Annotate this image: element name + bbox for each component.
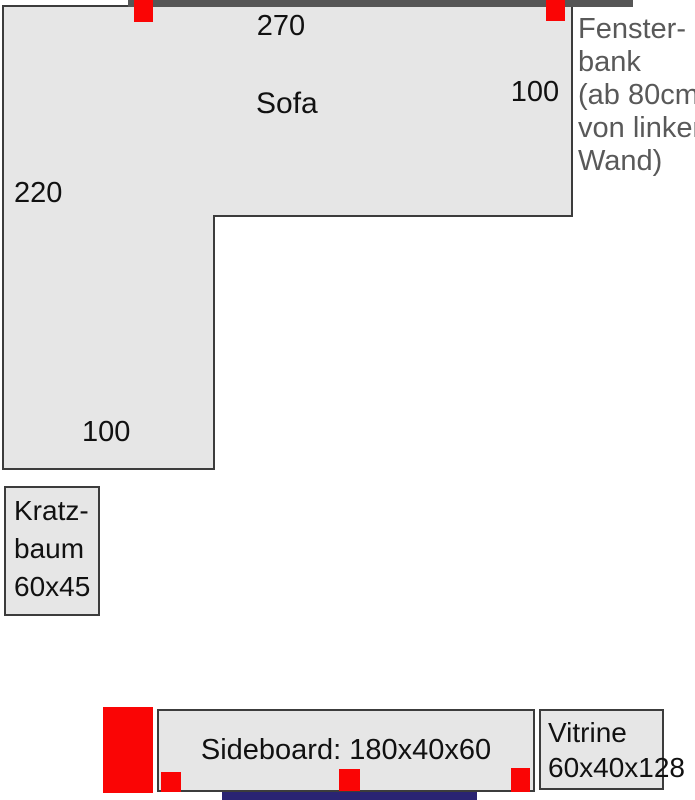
fensterbank-note-line: Fenster- xyxy=(578,13,695,46)
sofa-dim-left: 220 xyxy=(14,177,62,209)
red-marker-sideboard-left xyxy=(161,772,181,792)
sofa-dim-top: 270 xyxy=(253,10,309,42)
fensterbank-note-line: von linker xyxy=(578,112,695,145)
kratzbaum-line: baum xyxy=(14,530,98,568)
floor-plan: 270 Sofa 100 220 100 Fenster- bank (ab 8… xyxy=(0,0,695,800)
red-marker-sideboard-center xyxy=(339,769,360,791)
sofa-dim-bottom: 100 xyxy=(82,416,130,448)
fensterbank-note-line: bank xyxy=(578,46,695,79)
sofa-dim-right: 100 xyxy=(507,76,563,108)
red-marker-top-right xyxy=(546,0,565,21)
red-block-large xyxy=(103,707,153,793)
fensterbank-note: Fenster- bank (ab 80cm von linker Wand) xyxy=(578,13,695,178)
kratzbaum-line: 60x45 xyxy=(14,568,98,606)
sideboard-label: Sideboard: 180x40x60 xyxy=(201,734,491,767)
red-marker-top-left xyxy=(134,0,153,22)
vitrine-label: Vitrine xyxy=(548,715,662,750)
fensterbank-note-line: Wand) xyxy=(578,145,695,178)
kratzbaum-line: Kratz- xyxy=(14,492,98,530)
red-marker-sideboard-right xyxy=(511,768,530,792)
fensterbank-note-line: (ab 80cm xyxy=(578,79,695,112)
sofa-outline xyxy=(0,0,580,475)
vitrine-box: Vitrine 60x40x128 xyxy=(539,709,664,790)
sofa-shape xyxy=(3,6,572,469)
kratzbaum-box: Kratz- baum 60x45 xyxy=(4,486,100,616)
sofa-label: Sofa xyxy=(256,87,318,121)
vitrine-dimensions: 60x40x128 xyxy=(548,750,662,785)
wall-segment-bottom xyxy=(222,792,477,800)
